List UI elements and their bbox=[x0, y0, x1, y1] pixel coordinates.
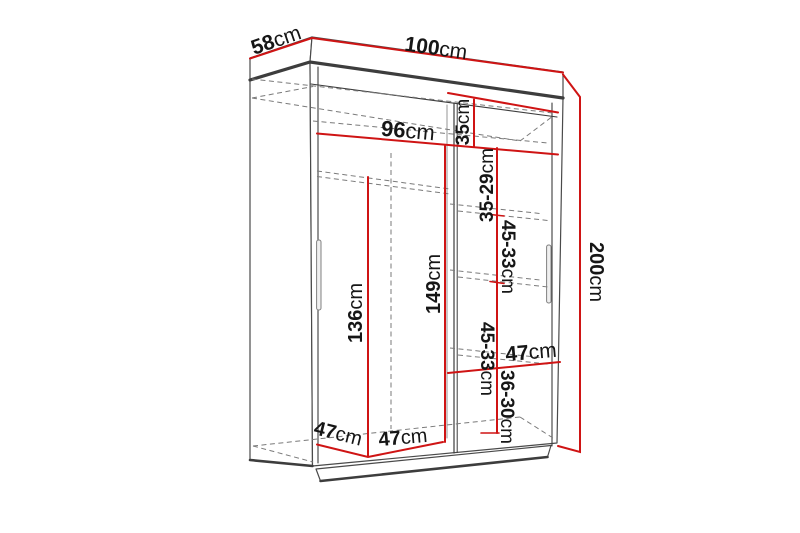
dimension-label-gap-36-30: 36-30cm bbox=[497, 370, 518, 444]
left-door-handle bbox=[317, 240, 321, 310]
dimension-label-hanging-136: 136cm bbox=[345, 283, 367, 343]
dimension-label-gap-35-29: 35-29cm bbox=[477, 148, 498, 222]
dimension-label-height-200: 200cm bbox=[585, 242, 607, 302]
wardrobe-side-panel bbox=[250, 62, 313, 466]
dimension-label-bottom-width-47: 47cm bbox=[378, 425, 429, 451]
dimension-label-top-shelf-35: 35cm bbox=[453, 99, 474, 145]
dimension-label-shelf-width-47: 47cm bbox=[504, 338, 557, 365]
dimension-label-column-149: 149cm bbox=[423, 254, 445, 314]
dimension-label-gap-45-33-lower: 45-33cm bbox=[477, 322, 498, 396]
dimension-label-interior-width-96: 96cm bbox=[380, 115, 436, 145]
product-dimension-diagram: 58cm 100cm 96cm 35cm 35-29cm 45-33cm 149… bbox=[0, 0, 800, 533]
dimension-label-gap-45-33-upper: 45-33cm bbox=[498, 220, 519, 294]
wardrobe-diagram-canvas: 58cm 100cm 96cm 35cm 35-29cm 45-33cm 149… bbox=[0, 0, 800, 533]
right-door-handle bbox=[547, 245, 551, 303]
